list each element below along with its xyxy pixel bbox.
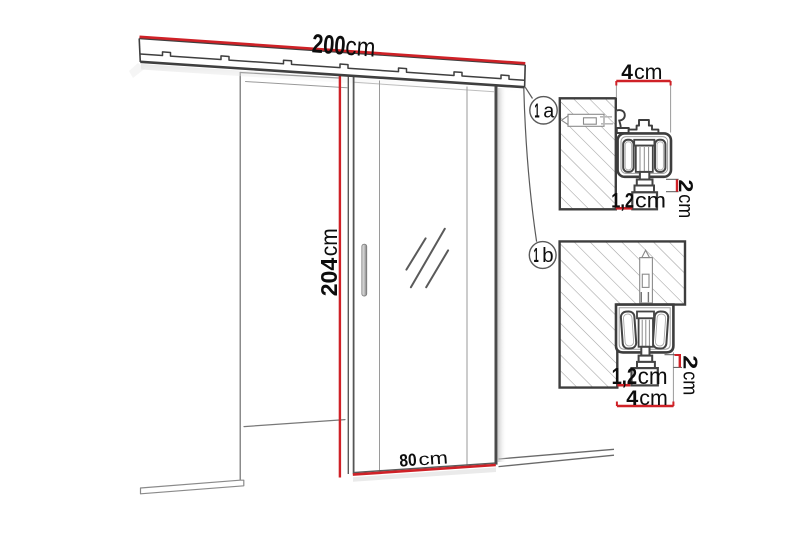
svg-text:4cm: 4cm — [621, 60, 662, 84]
svg-text:1a: 1a — [534, 100, 555, 122]
svg-text:1,2cm: 1,2cm — [612, 363, 668, 389]
svg-text:80cm: 80cm — [399, 447, 449, 470]
svg-text:1,2cm: 1,2cm — [611, 189, 666, 213]
svg-text:4cm: 4cm — [626, 387, 668, 410]
svg-text:200cm: 200cm — [311, 28, 376, 62]
svg-text:2cm: 2cm — [674, 180, 696, 219]
svg-text:2cm: 2cm — [678, 355, 701, 395]
svg-text:204cm: 204cm — [316, 228, 342, 296]
svg-text:1b: 1b — [534, 245, 554, 267]
